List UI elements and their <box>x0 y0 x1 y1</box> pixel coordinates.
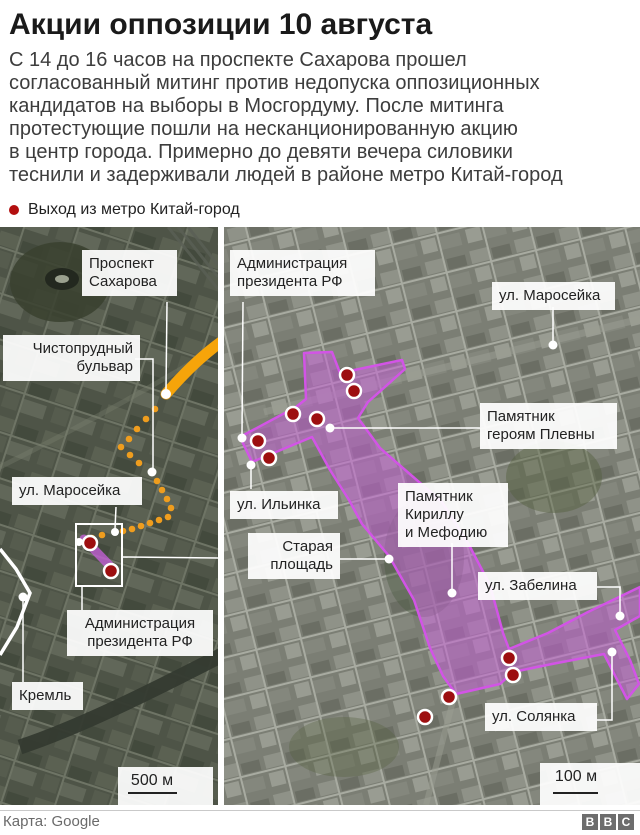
label-plevna-monument: Памятник героям Плевны <box>480 403 617 449</box>
map-credit: Карта: Google <box>3 813 100 830</box>
label-staraya-ploshchad: Старая площадь <box>248 533 340 579</box>
park-area-2 <box>289 717 399 777</box>
detail-map: Администрация президента РФ ул. Маросейк… <box>224 227 640 805</box>
label-admin-detail: Администрация президента РФ <box>230 250 375 296</box>
scale-label-500m: 500 м <box>124 772 180 790</box>
label-kirill-mefody-monument: Памятник Кириллу и Мефодию <box>398 483 508 547</box>
label-maroseyka-overview: ул. Маросейка <box>12 477 142 505</box>
overview-map: Проспект Сахарова Чистопрудный бульвар у… <box>0 227 218 805</box>
page-title: Акции оппозиции 10 августа <box>9 8 432 42</box>
legend: Выход из метро Китай-город <box>9 201 240 219</box>
metro-exit-legend-icon <box>9 205 19 215</box>
label-kreml: Кремль <box>12 682 83 710</box>
label-ilyinka: ул. Ильинка <box>230 491 338 519</box>
intro-text: С 14 до 16 часов на проспекте Сахарова п… <box>9 49 637 187</box>
bbc-logo-block-1: B <box>582 814 598 830</box>
park-area <box>506 441 602 513</box>
infographic: Акции оппозиции 10 августа С 14 до 16 ча… <box>0 0 640 835</box>
label-chistoprudny-bulvar: Чистопрудный бульвар <box>3 335 140 381</box>
bbc-logo-block-2: B <box>600 814 616 830</box>
bbc-logo: B B C <box>582 814 634 830</box>
label-maroseyka-detail: ул. Маросейка <box>492 282 615 310</box>
label-prospekt-sakharova: Проспект Сахарова <box>82 250 177 296</box>
footer-divider <box>0 810 640 811</box>
label-zabelina: ул. Забелина <box>478 572 597 600</box>
label-solyanka: ул. Солянка <box>485 703 597 731</box>
bbc-logo-block-3: C <box>618 814 634 830</box>
detail-link-line <box>122 557 218 558</box>
legend-label: Выход из метро Китай-город <box>28 201 240 219</box>
stadium-field <box>55 275 69 283</box>
label-admin-overview: Администрация президента РФ <box>67 610 213 656</box>
scale-label-100m: 100 м <box>550 768 602 786</box>
overview-map-canvas <box>0 227 218 805</box>
